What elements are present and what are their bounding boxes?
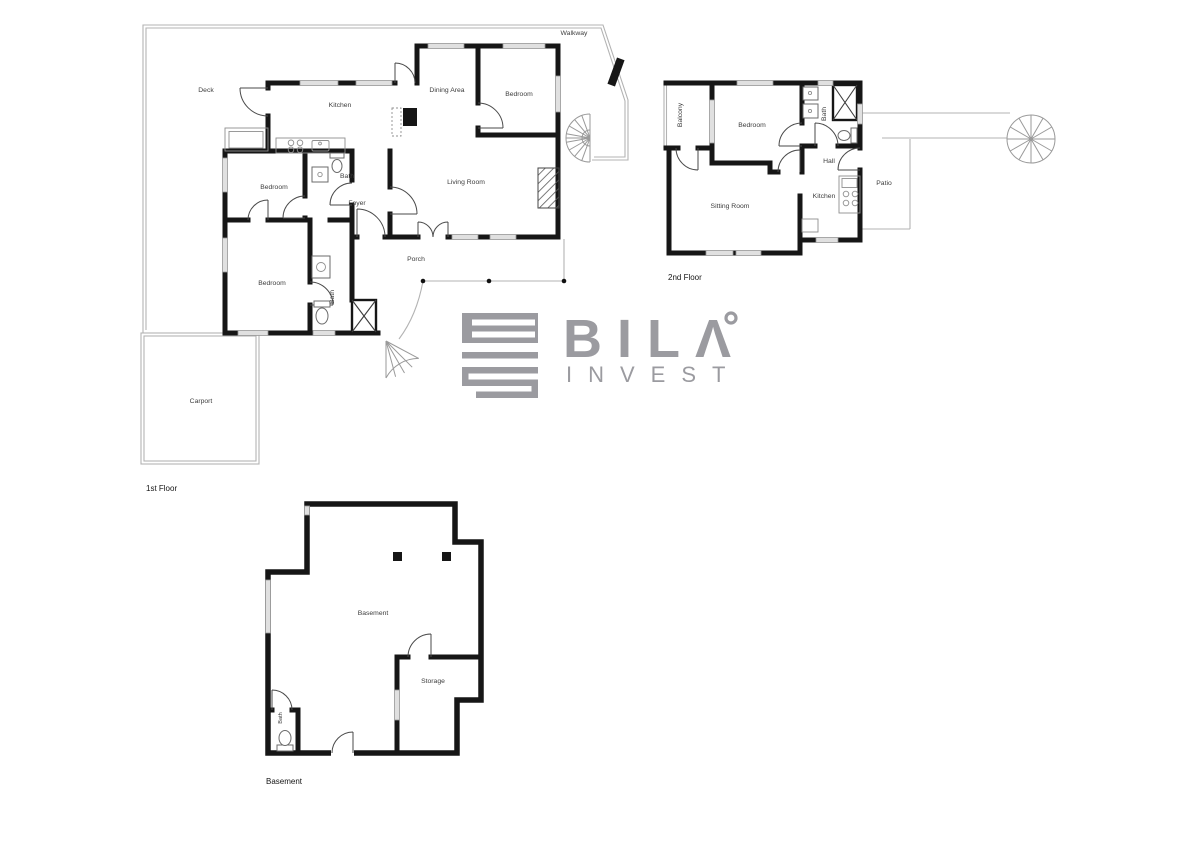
room-label-patio: Patio	[876, 180, 892, 187]
room-label-hall: Hall	[823, 158, 835, 165]
pantry-icon	[392, 108, 401, 136]
floor-label-second: 2nd Floor	[668, 273, 702, 282]
room-label-foyer: Foyer	[348, 200, 366, 207]
basement-plan: Basement Storage Bath Basement	[266, 504, 482, 786]
room-label-living-room: Living Room	[447, 179, 485, 186]
basement-walls	[268, 504, 481, 758]
first-floor-plan: Walkway Deck Kitchen Dining Area Bedroom…	[141, 25, 628, 493]
room-label-basement: Basement	[358, 610, 389, 617]
kitchen-2f-fixtures	[802, 176, 860, 232]
room-label-carport: Carport	[190, 398, 213, 405]
brand-subtitle: INVEST	[566, 362, 741, 387]
room-label-walkway: Walkway	[561, 30, 589, 37]
room-label-dining-area: Dining Area	[429, 87, 464, 94]
floor-label-basement: Basement	[266, 777, 303, 786]
room-label-bedroom-top: Bedroom	[505, 91, 533, 98]
floor-plan-canvas: Walkway Deck Kitchen Dining Area Bedroom…	[0, 0, 1200, 859]
room-label-kitchen-1f: Kitchen	[329, 102, 352, 109]
spiral-staircase	[1007, 115, 1055, 163]
room-label-balcony: Balcony	[677, 102, 684, 127]
room-label-bedroom-lower: Bedroom	[258, 280, 286, 287]
fridge-icon	[403, 108, 417, 126]
room-label-porch: Porch	[407, 256, 425, 263]
room-label-sitting-room: Sitting Room	[711, 203, 750, 210]
room-label-bath-lower: Bath	[329, 290, 336, 304]
room-label-kitchen-2f: Kitchen	[813, 193, 836, 200]
second-floor-walls	[666, 83, 860, 253]
room-label-bath-upper: Bath	[340, 173, 354, 180]
walkway-stairs	[566, 114, 590, 162]
fireplace-icon	[538, 168, 559, 208]
room-label-deck: Deck	[198, 87, 214, 94]
deck-outline	[141, 25, 628, 464]
basement-fixtures	[277, 731, 293, 752]
room-label-bedroom-2f: Bedroom	[738, 122, 766, 129]
room-label-storage: Storage	[421, 678, 445, 685]
room-label-bath-2f: Bath	[821, 107, 828, 121]
floor-plan-sheet: Walkway Deck Kitchen Dining Area Bedroom…	[0, 0, 1200, 859]
second-floor-plan: Balcony Bedroom Bath Hall Patio Sitting …	[664, 81, 1055, 283]
porch-stairs	[386, 341, 419, 378]
brand-logo-mark	[462, 313, 538, 398]
brand-title: BILΛ	[563, 309, 746, 369]
room-label-bath-basement: Bath	[278, 712, 284, 724]
room-label-bedroom-mid: Bedroom	[260, 184, 288, 191]
floor-label-first: 1st Floor	[146, 484, 177, 493]
closet-cabinet	[225, 128, 268, 151]
brand-watermark: BILΛ INVEST	[462, 309, 746, 398]
